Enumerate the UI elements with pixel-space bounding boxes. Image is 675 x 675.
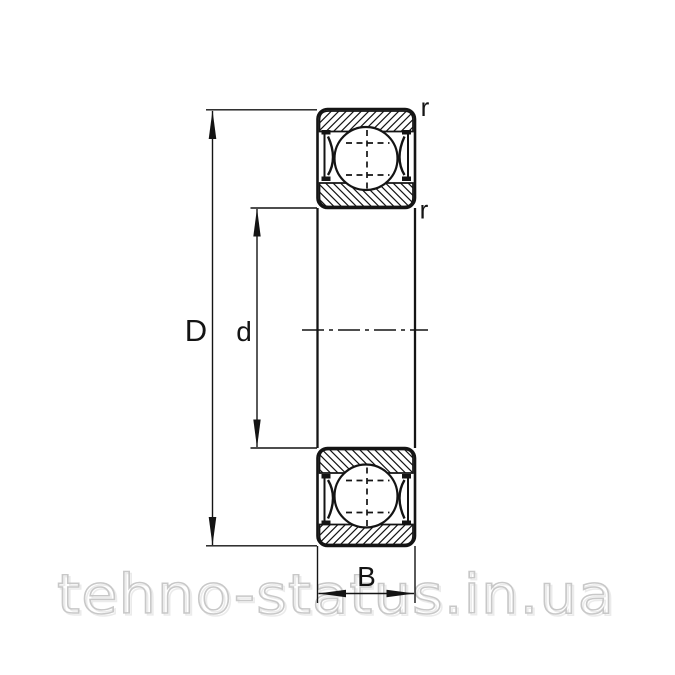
label-r-bottom: r: [420, 195, 429, 225]
radius-labels: r r: [420, 92, 430, 225]
dimension-d: d: [236, 208, 317, 448]
bearing-diagram-svg: tehno-status.in.ua tehno-status.in.ua: [0, 0, 675, 675]
arrowhead-d-up: [253, 208, 260, 236]
bearing-drawing-page: tehno-status.in.ua tehno-status.in.ua: [0, 0, 675, 675]
arrowhead-d-down: [253, 420, 260, 448]
arrowhead-D-down: [209, 517, 217, 546]
arrowhead-D-up: [209, 110, 217, 139]
ball-top: [335, 127, 398, 190]
label-D: D: [185, 313, 207, 348]
bore-lines: [318, 208, 416, 448]
ball-bottom: [335, 465, 398, 528]
bearing-section-top: [318, 109, 416, 208]
label-r-top: r: [421, 92, 430, 122]
bearing-section-bottom: [318, 448, 416, 546]
label-d: d: [236, 316, 252, 347]
label-B: B: [357, 561, 376, 592]
